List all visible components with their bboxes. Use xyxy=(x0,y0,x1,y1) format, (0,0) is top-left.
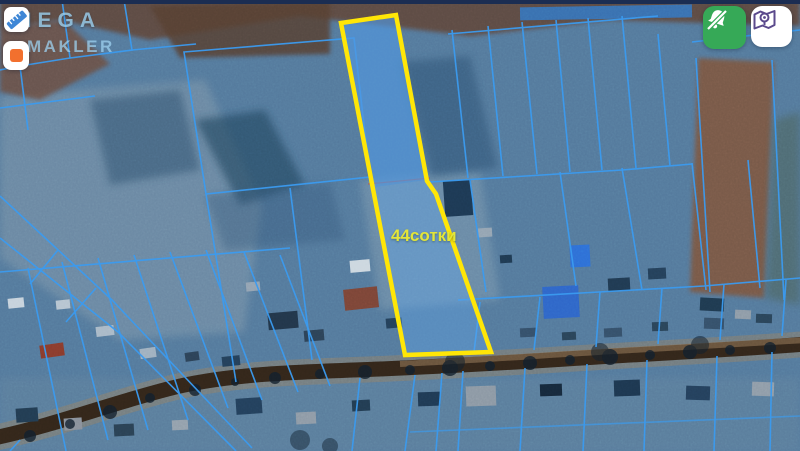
measure-tool-button[interactable] xyxy=(4,7,29,32)
orange-square-icon xyxy=(10,49,23,62)
satellite-map[interactable] xyxy=(0,0,800,451)
hide-markers-button[interactable] xyxy=(703,6,746,49)
map-viewport[interactable]: MEGA MAKLER 44сотки xyxy=(0,0,800,451)
top-strip xyxy=(0,0,800,4)
shape-tool-button[interactable] xyxy=(3,41,29,70)
map-mode-button[interactable] xyxy=(751,6,792,47)
